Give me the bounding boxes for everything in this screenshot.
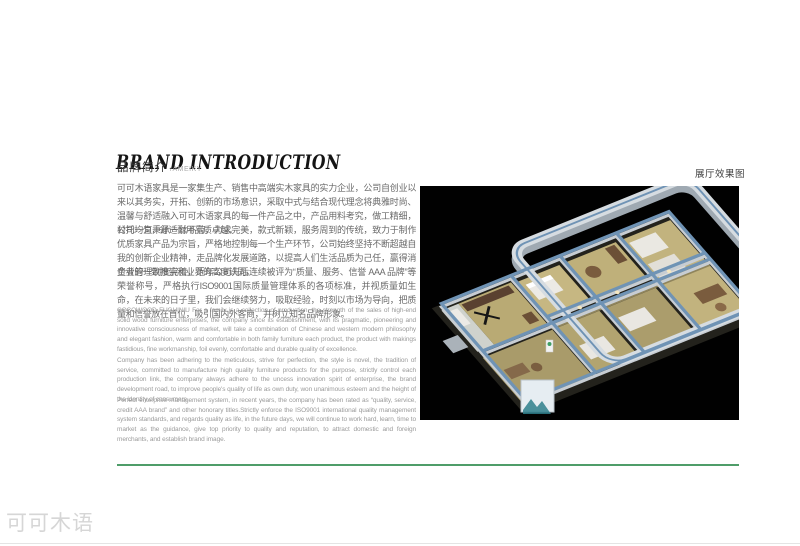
page-subtitle: 品牌简介/AMEIKY <box>117 158 202 176</box>
subtitle-chinese: 品牌简介 <box>117 162 167 174</box>
subtitle-latin-tag: /AMEIKY <box>170 166 202 173</box>
en-paragraph-3: Perfect enterprise management system, in… <box>117 396 416 445</box>
floorplan-3d-illustration <box>420 186 739 420</box>
brand-logo: 可可木语 <box>6 507 94 537</box>
bottom-hairline <box>0 543 800 544</box>
accent-divider <box>117 464 739 466</box>
showroom-render <box>420 186 739 420</box>
render-caption: 展厅效果图 <box>420 166 745 180</box>
en-paragraph-1: COCOWOOD FUGUINIU For a family is a coll… <box>117 306 416 355</box>
brand-intro-page: BRAND INTRODUCTION 品牌简介/AMEIKY 可可木语家具是一家… <box>0 0 800 546</box>
